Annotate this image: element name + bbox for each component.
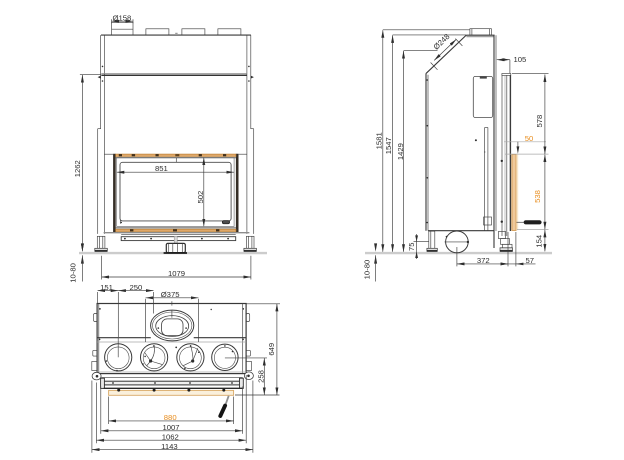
svg-text:75: 75 (407, 243, 416, 251)
svg-text:502: 502 (196, 191, 205, 204)
svg-text:154: 154 (534, 234, 543, 248)
svg-text:258: 258 (256, 370, 265, 383)
svg-text:10-80: 10-80 (363, 260, 372, 280)
svg-text:851: 851 (155, 164, 168, 173)
svg-text:1079: 1079 (168, 269, 185, 278)
svg-text:880: 880 (164, 413, 177, 422)
svg-text:Ø375: Ø375 (161, 290, 180, 299)
svg-text:372: 372 (477, 256, 490, 265)
svg-text:649: 649 (267, 343, 276, 356)
svg-text:105: 105 (514, 55, 527, 64)
svg-text:538: 538 (533, 190, 542, 203)
svg-text:1429: 1429 (396, 143, 405, 160)
svg-text:1262: 1262 (73, 160, 82, 177)
svg-text:250: 250 (129, 283, 142, 292)
svg-text:1581: 1581 (374, 132, 383, 149)
svg-text:50: 50 (525, 134, 534, 143)
svg-text:10-80: 10-80 (68, 263, 77, 283)
svg-text:57: 57 (526, 256, 535, 265)
svg-text:1007: 1007 (162, 423, 179, 432)
svg-text:1143: 1143 (161, 442, 178, 451)
svg-text:151: 151 (100, 283, 113, 292)
svg-text:Ø158: Ø158 (112, 13, 131, 22)
svg-text:578: 578 (535, 115, 544, 128)
svg-text:1062: 1062 (162, 432, 179, 441)
svg-text:1547: 1547 (384, 137, 393, 154)
